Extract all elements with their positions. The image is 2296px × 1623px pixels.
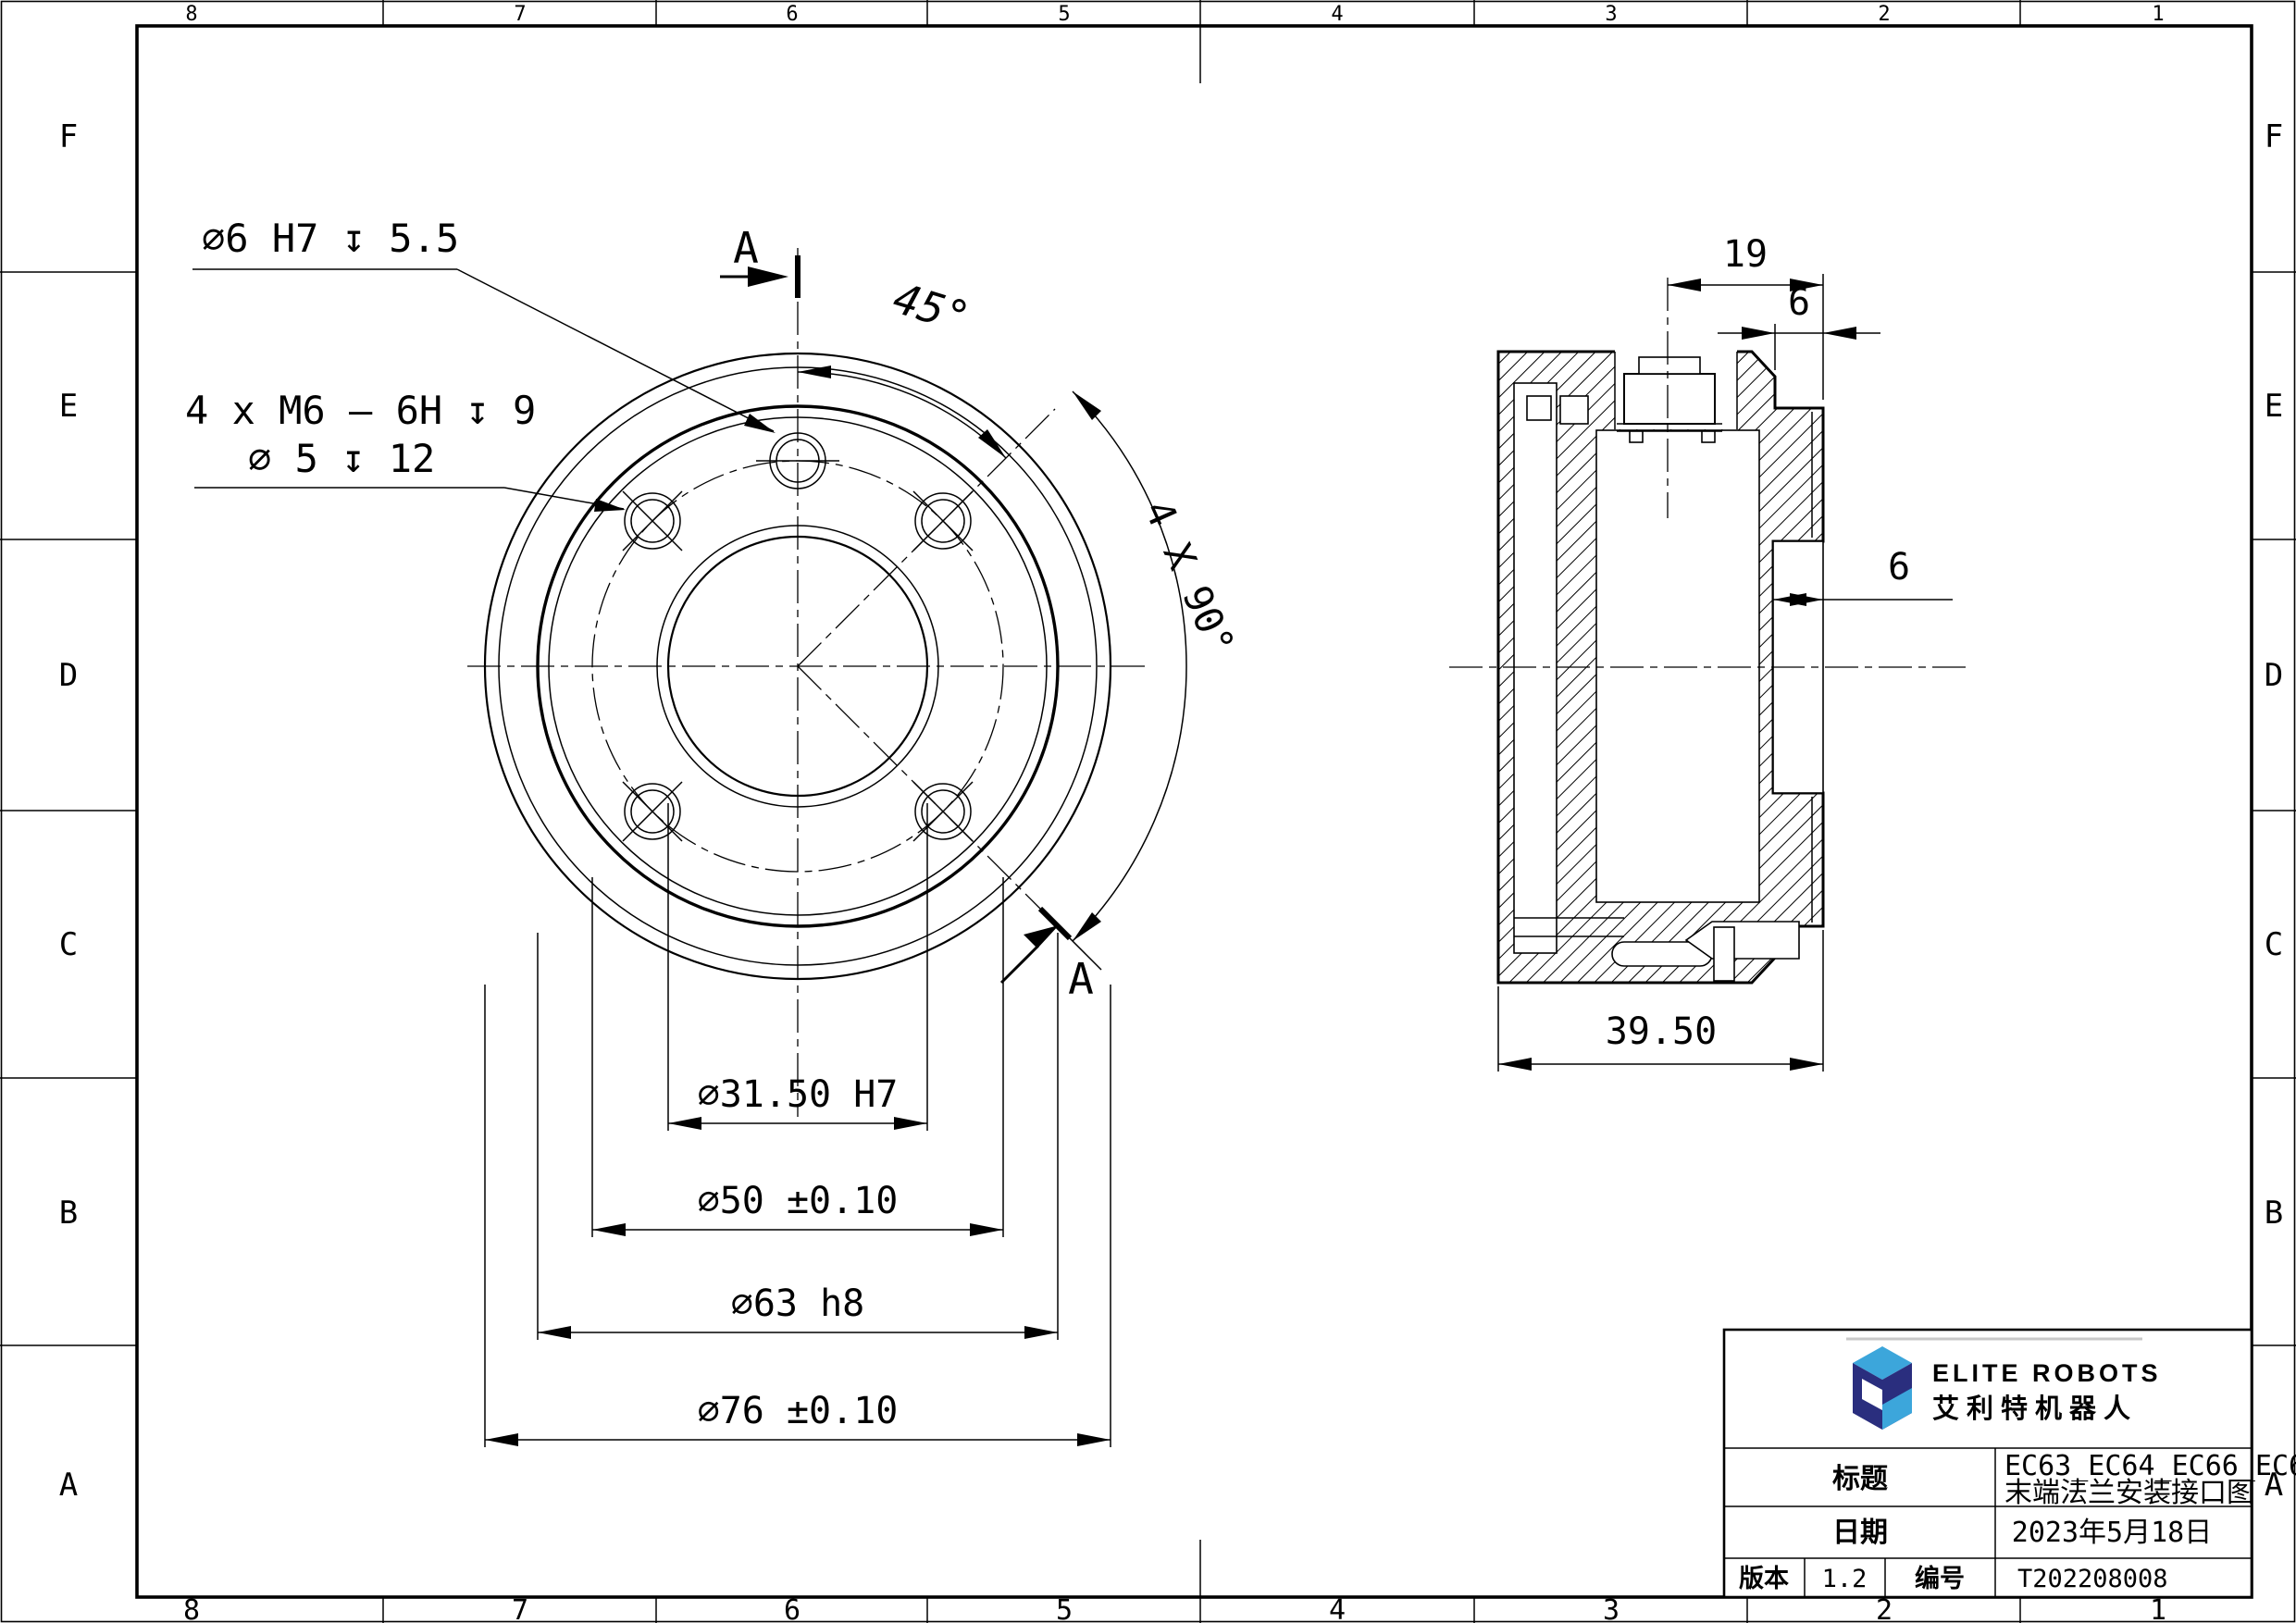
zone-row: F [2265,118,2283,155]
dim-d63: ∅63 h8 [538,933,1058,1340]
dim-label: ∅63 h8 [731,1282,865,1325]
callout-m6-line2: ∅ 5 ↧ 12 [248,436,435,481]
section-mark-top: A [720,223,798,298]
dim-label: 39.50 [1606,1010,1717,1053]
detail-notch-left [1527,396,1551,420]
dim-label: 19 [1723,233,1768,276]
front-view: A A 45° 4 X 90° ∅6 H7 ↧ 5.5 [185,216,1244,1447]
bottom-pin [1714,927,1734,981]
title-value-line2: 末端法兰安装接口图 [2004,1477,2254,1509]
callout-dowel-text: ∅6 H7 ↧ 5.5 [202,216,459,261]
connector-foot [1630,431,1643,442]
zone-col: 6 [784,1594,800,1623]
zone-ticks-top [383,0,2020,83]
brand-name-cn: 艾利特机器人 [1932,1394,2138,1424]
connector-plug [1639,357,1700,374]
m6-hole-se [913,782,973,841]
zone-row: B [2265,1195,2283,1232]
detail-notch [1560,396,1588,424]
zone-col: 7 [512,1594,528,1623]
outer-wall-gap [1514,383,1557,953]
zone-col: 8 [183,1594,200,1623]
section-label-top: A [733,223,759,273]
date-label: 日期 [1832,1518,1888,1548]
zone-row: C [59,926,78,963]
number-label: 编号 [1915,1564,1965,1592]
zone-col: 7 [514,3,526,26]
zone-col: 2 [1878,3,1890,26]
callout-m6-line1: 4 x M6 — 6H ↧ 9 [185,388,536,433]
dim-label: ∅31.50 H7 [698,1073,899,1116]
angle-pattern-label: 4 X 90° [1136,493,1244,662]
zone-ticks-sides [0,272,2296,1345]
section-view: 19 6 6 39.50 [1449,233,1967,1072]
zone-row: C [2265,926,2283,963]
connector-body [1624,374,1715,424]
drawing-sheet: 8 7 6 5 4 3 2 1 8 7 6 5 4 3 2 1 F E D C … [0,0,2296,1623]
zone-row: D [2265,657,2283,694]
zone-col: 4 [1331,3,1343,26]
inner-cavity [1596,430,1759,902]
connector-foot [1702,431,1715,442]
brand-name-en: ELITE ROBOTS [1932,1359,2162,1387]
section-label-bottom: A [1068,954,1094,1004]
title-block: ELITE ROBOTS 艾利特机器人 标题 EC63_EC64_EC66_EC… [1724,1330,2296,1597]
version-label: 版本 [1739,1565,1789,1592]
zone-col: 8 [185,3,197,26]
zone-row: E [2265,388,2283,425]
dim-label: ∅50 ±0.10 [698,1180,899,1222]
title-label: 标题 [1832,1464,1888,1494]
m6-hole-sw [623,782,682,841]
dim-label: ∅76 ±0.10 [698,1390,899,1432]
zone-col: 3 [1603,1594,1620,1623]
zone-row: D [59,657,78,694]
zone-col: 2 [1876,1594,1893,1623]
m6-hole-nw [623,491,682,551]
angle-45-label: 45° [887,273,975,343]
version-value: 1.2 [1822,1565,1868,1593]
zone-col: 4 [1329,1594,1346,1623]
dim-label: 6 [1788,281,1810,324]
callout-m6-holes: 4 x M6 — 6H ↧ 9 ∅ 5 ↧ 12 [185,388,626,512]
dim-45-degrees: 45° [798,273,1006,458]
date-value: 2023年5月18日 [2012,1517,2212,1549]
zone-row: F [59,118,78,155]
number-value: T202208008 [2017,1565,2168,1593]
zone-col: 3 [1605,3,1617,26]
zone-row: E [59,388,78,425]
zone-col: 1 [2150,1594,2166,1623]
zone-numbers-top: 8 7 6 5 4 3 2 1 [185,3,2164,26]
zone-row: B [59,1195,78,1232]
zone-col: 1 [2152,3,2164,26]
drawing-svg: 8 7 6 5 4 3 2 1 8 7 6 5 4 3 2 1 F E D C … [0,0,2296,1623]
zone-col: 5 [1056,1594,1073,1623]
bottom-channel [1686,922,1799,959]
dim-label: 6 [1888,546,1910,588]
zone-col: 5 [1058,3,1070,26]
zone-col: 6 [786,3,798,26]
zone-row: A [59,1467,78,1504]
